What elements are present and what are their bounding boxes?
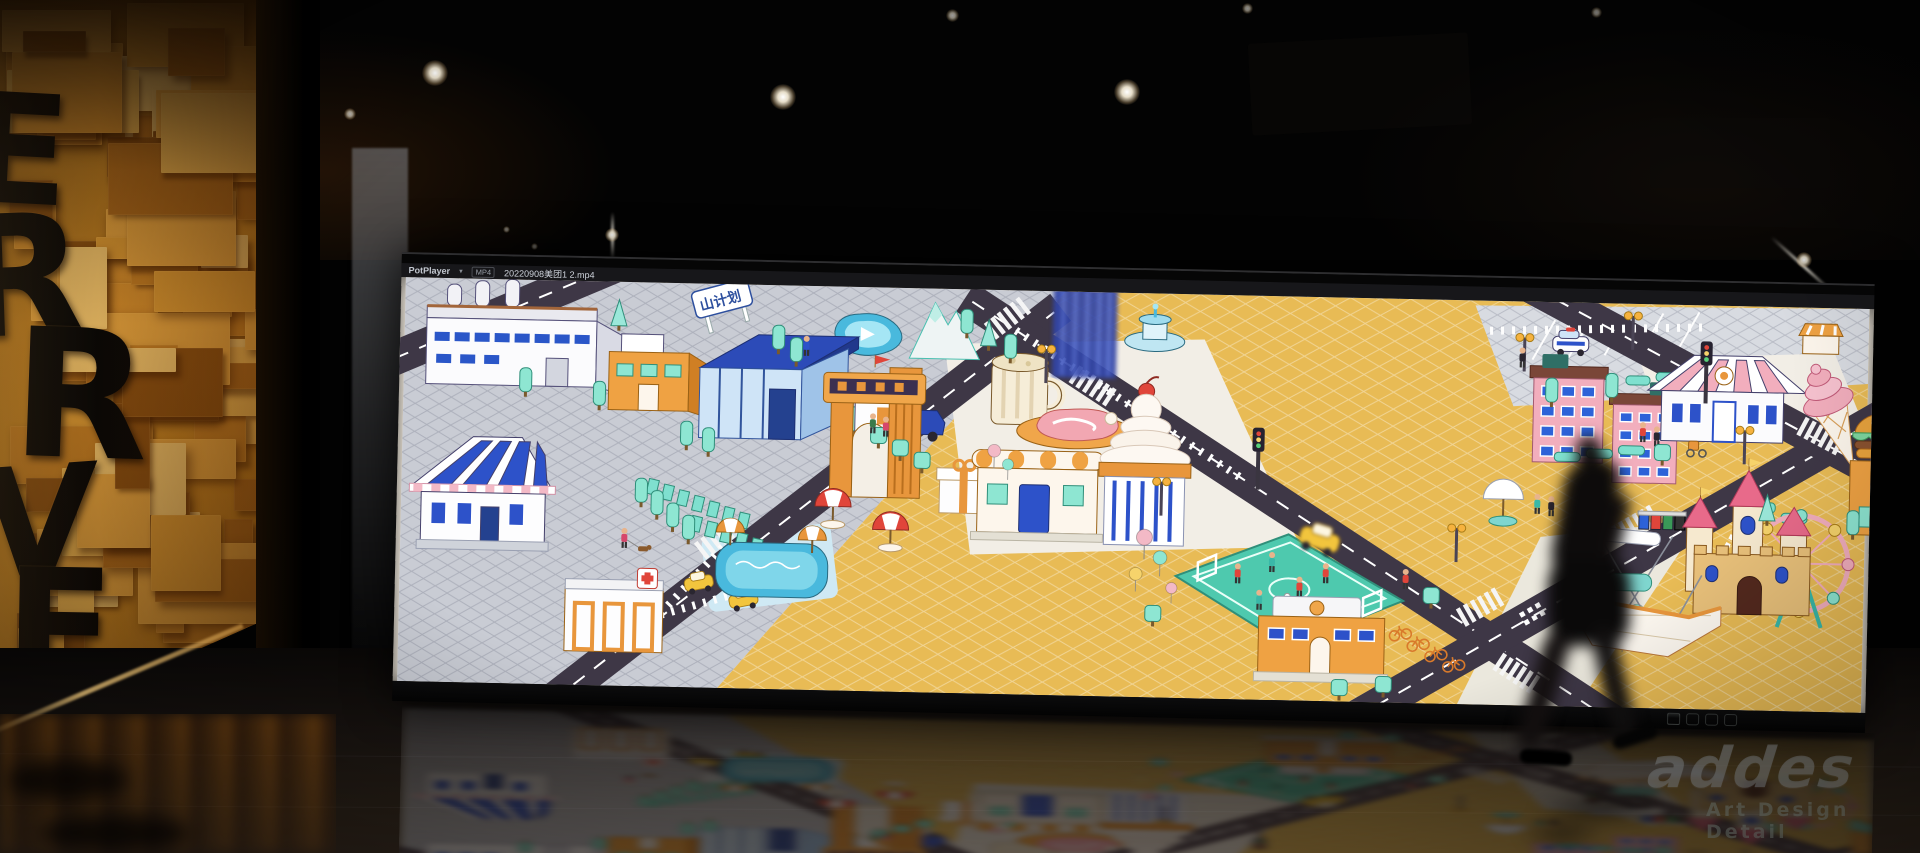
restaurant-shop <box>970 449 1104 542</box>
market-stall <box>1799 323 1844 354</box>
brand-glyph-icon <box>1705 714 1718 726</box>
ceiling-vent <box>1650 118 1830 188</box>
brand-glyph-icon <box>1724 714 1737 726</box>
brand-glyph-icon <box>1686 713 1699 725</box>
letter-floor-reflection <box>40 815 190 851</box>
spotlight-icon <box>1114 79 1140 105</box>
spotlight-icon <box>503 226 510 233</box>
ceiling-vent <box>1248 32 1473 135</box>
person-skirt <box>1548 558 1630 646</box>
spotlight-icon <box>344 108 356 120</box>
watermark-logo: addes <box>1645 736 1920 801</box>
chevron-down-icon: ▾ <box>459 267 463 275</box>
blue-tower-blurred <box>1052 279 1118 378</box>
player-app-name: PotPlayer <box>408 265 450 276</box>
watermark: addes Art Design Detail <box>1648 736 1916 843</box>
person-front-leg <box>1514 631 1572 754</box>
person-back-leg <box>1589 625 1638 741</box>
clinic-building <box>564 567 664 653</box>
showroom-photo: E R R V E PotPlayer▾MP420220908美团1 2.mp4 <box>0 0 1920 853</box>
spotlight-icon <box>605 228 619 242</box>
codec-badge: MP4 <box>472 266 496 278</box>
spotlight-icon <box>1242 3 1253 14</box>
watermark-tagline: Art Design Detail <box>1648 799 1916 843</box>
video-filename: 20220908美团1 2.mp4 <box>504 266 595 281</box>
spotlight-icon <box>422 60 448 86</box>
red-cross-sign <box>637 568 657 588</box>
castle-wall <box>1693 545 1810 616</box>
wall-side-return <box>256 0 320 720</box>
spotlight-icon <box>770 84 796 110</box>
letter-floor-reflection <box>8 760 128 800</box>
spotlight-icon <box>1796 252 1812 268</box>
spotlight-icon <box>531 243 538 250</box>
walking-person <box>1518 436 1678 781</box>
spotlight-icon <box>1591 7 1602 18</box>
spotlight-icon <box>946 9 959 22</box>
